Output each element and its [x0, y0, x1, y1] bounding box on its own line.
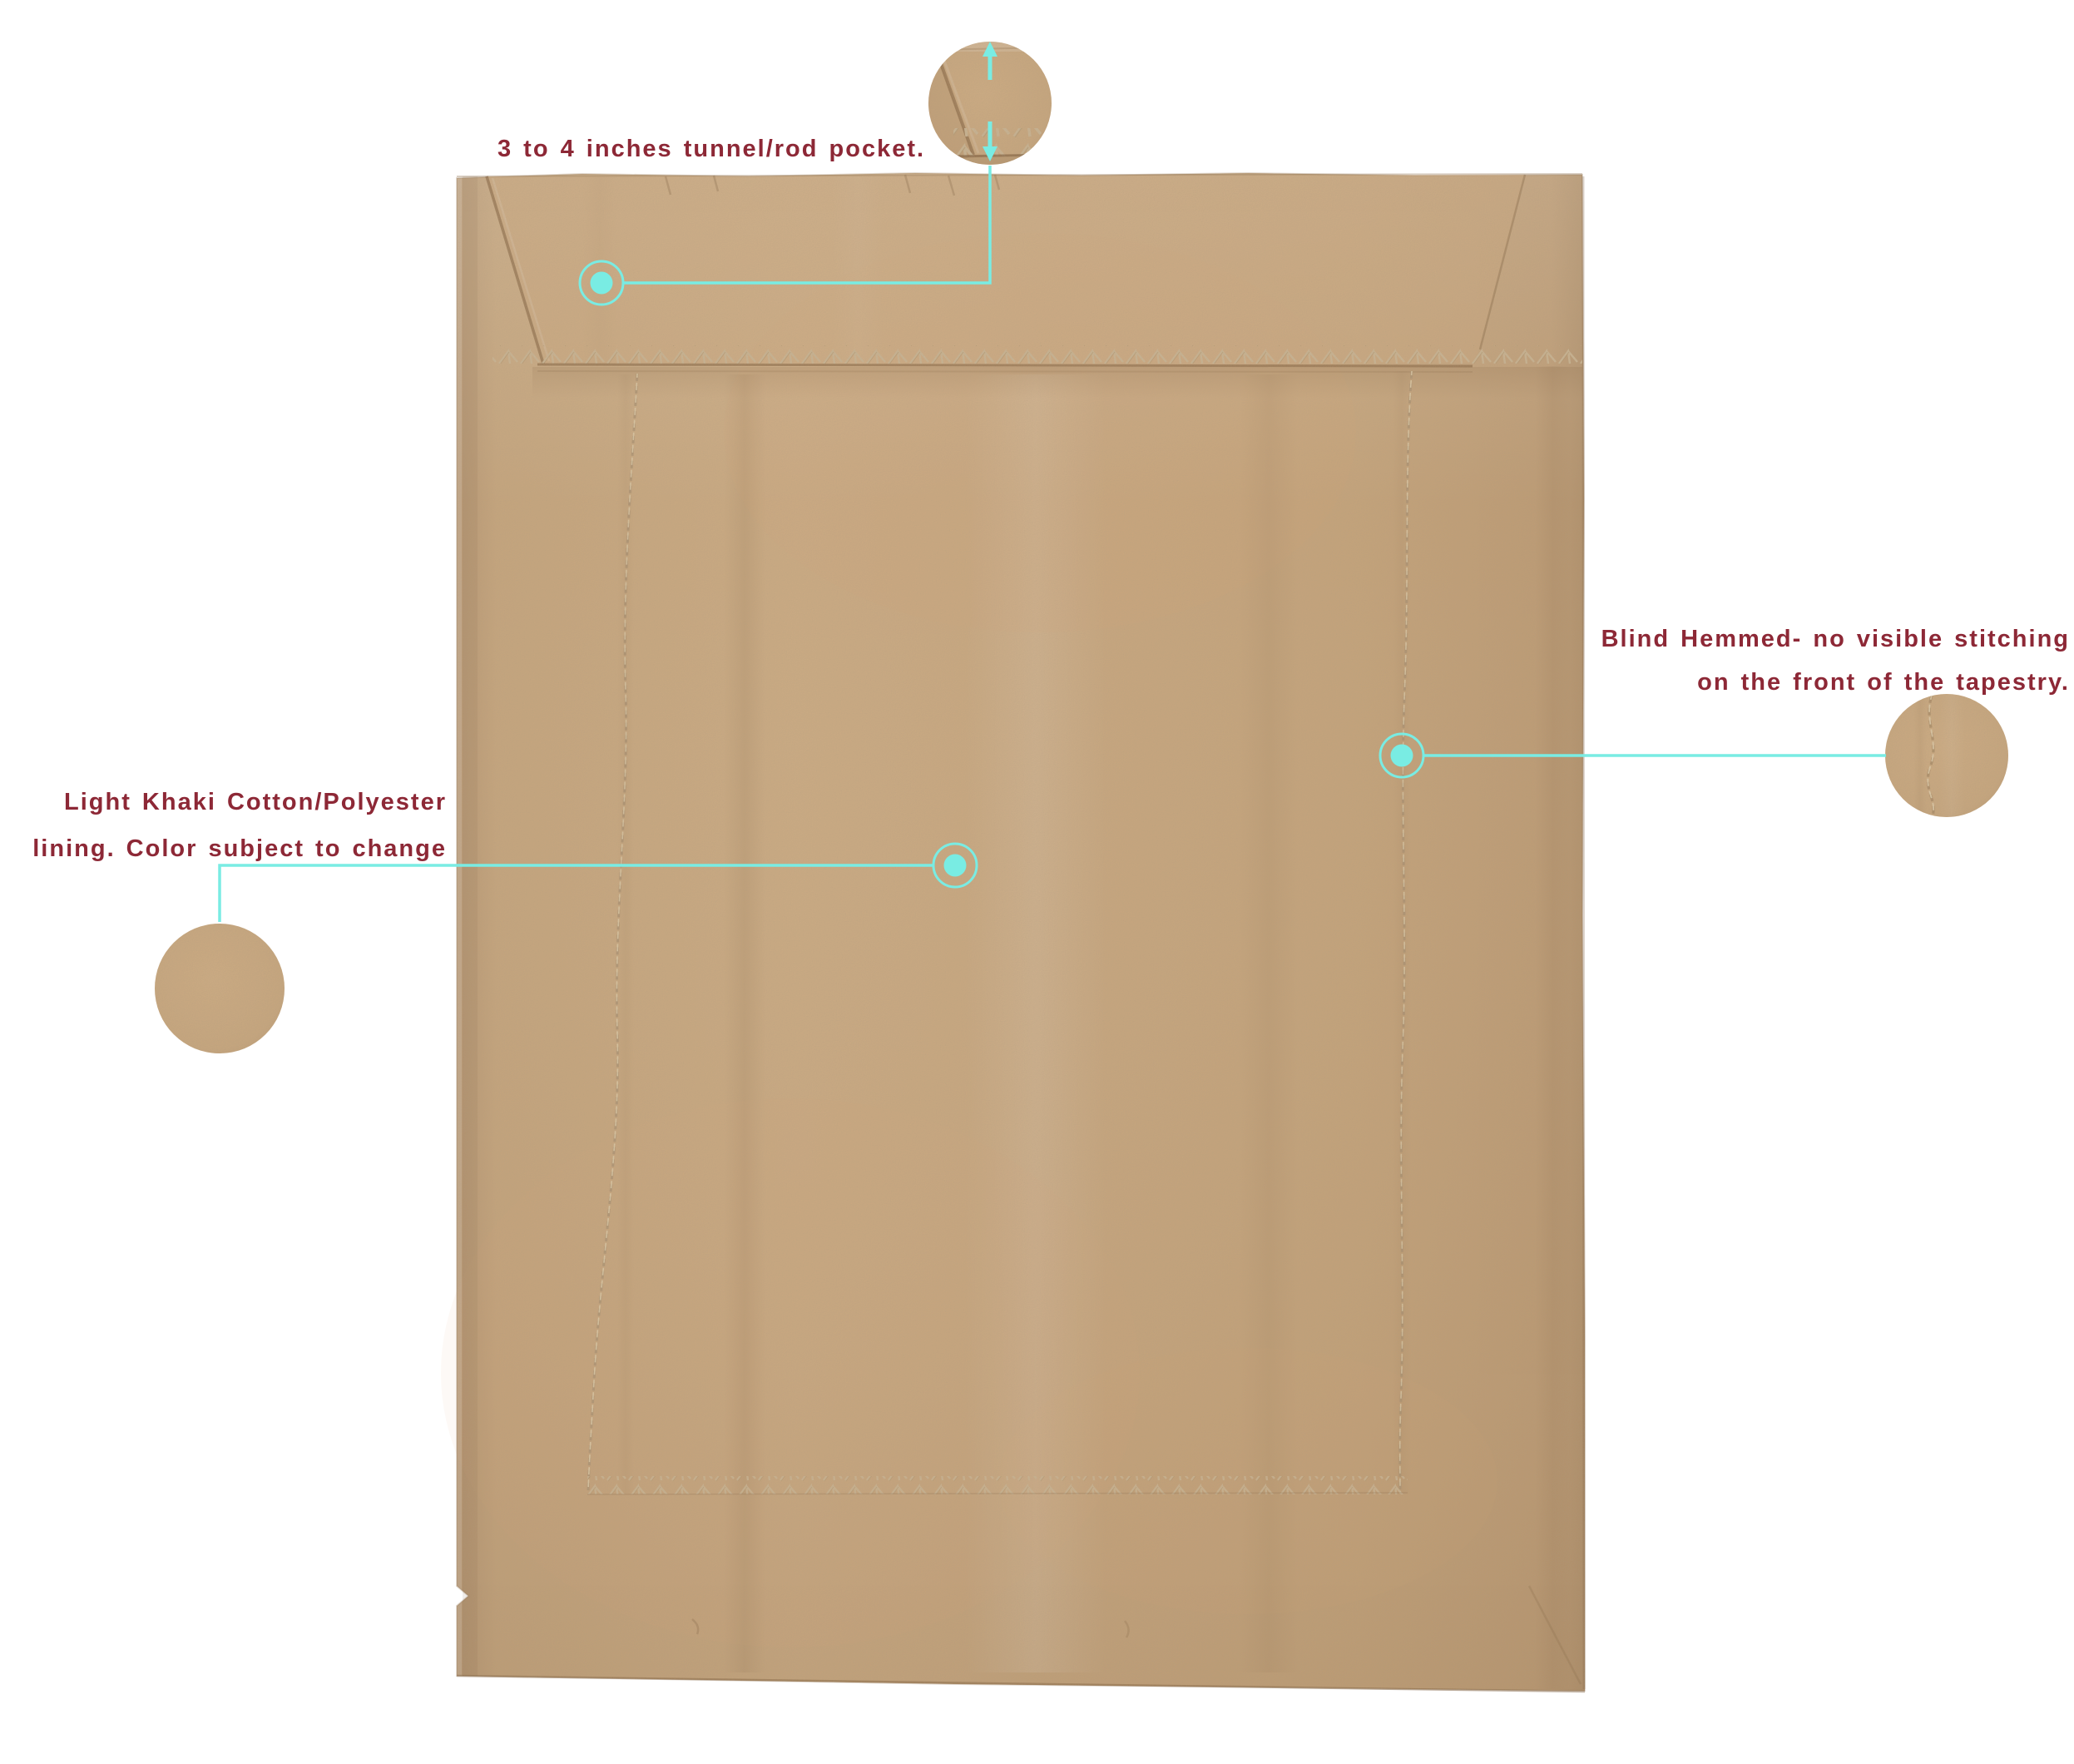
fabric-texture: [0, 0, 2074, 1764]
blind-hem-label-line2: on the front of the tapestry.: [1601, 661, 2070, 704]
lining-label-line1: Light Khaki Cotton/Polyester: [32, 779, 447, 825]
rod-pocket-label: 3 to 4 inches tunnel/rod pocket.: [497, 136, 925, 163]
tapestry-graphic: [0, 0, 2074, 1764]
blind-hem-label: Blind Hemmed- no visible stitching on th…: [1601, 617, 2070, 704]
lining-label: Light Khaki Cotton/Polyester lining. Col…: [32, 779, 447, 872]
lining-label-line2: lining. Color subject to change: [32, 825, 447, 872]
blind-hem-label-line1: Blind Hemmed- no visible stitching: [1601, 617, 2070, 661]
product-annotation-diagram: 3 to 4 inches tunnel/rod pocket. Light K…: [0, 0, 2074, 1764]
